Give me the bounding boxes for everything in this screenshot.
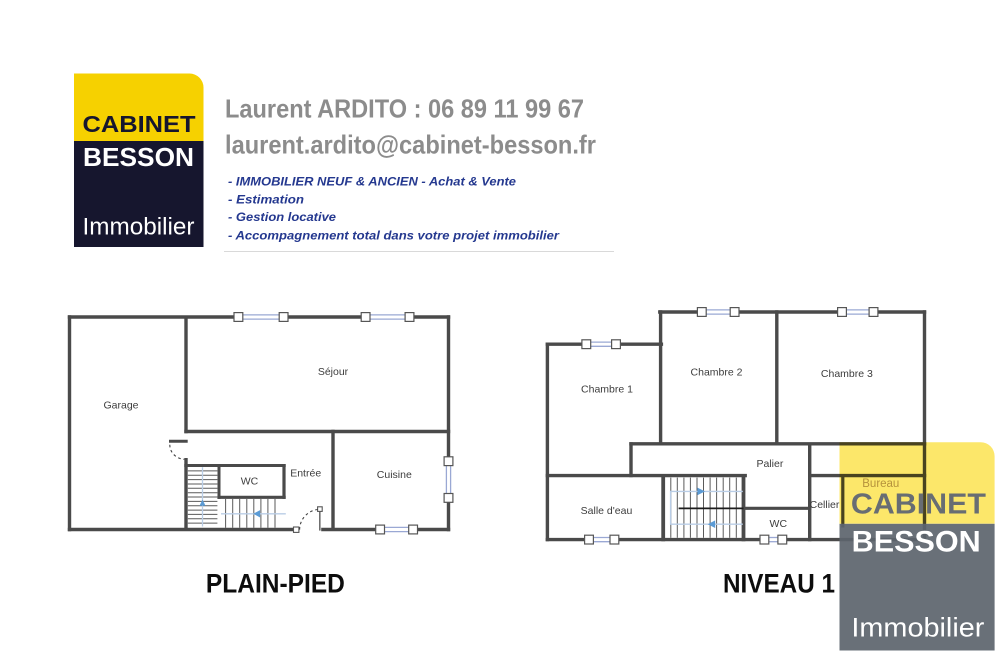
- svg-text:- Gestion locative: - Gestion locative: [228, 212, 337, 224]
- svg-text:Laurent ARDITO : 06 89 11 99 6: Laurent ARDITO : 06 89 11 99 67: [225, 94, 584, 124]
- svg-text:NIVEAU 1: NIVEAU 1: [723, 569, 835, 599]
- svg-text:- Accompagnement total dans vo: - Accompagnement total dans votre projet…: [228, 231, 560, 243]
- svg-text:Garage: Garage: [103, 400, 138, 412]
- svg-text:WC: WC: [241, 476, 259, 488]
- svg-text:- IMMOBILIER NEUF & ANCIEN - A: - IMMOBILIER NEUF & ANCIEN - Achat & Ven…: [228, 177, 517, 189]
- svg-text:Cellier: Cellier: [810, 499, 840, 511]
- svg-text:Palier: Palier: [756, 458, 783, 470]
- svg-text:CABINET: CABINET: [83, 111, 197, 137]
- svg-text:Chambre 3: Chambre 3: [821, 368, 873, 380]
- svg-text:Entrée: Entrée: [290, 468, 321, 480]
- svg-text:Chambre 2: Chambre 2: [691, 367, 743, 379]
- svg-text:Cuisine: Cuisine: [377, 469, 412, 481]
- svg-text:CABINET: CABINET: [851, 489, 986, 521]
- svg-text:Salle d'eau: Salle d'eau: [581, 505, 633, 517]
- svg-text:Séjour: Séjour: [318, 366, 349, 378]
- svg-text:PLAIN-PIED: PLAIN-PIED: [206, 569, 345, 599]
- svg-text:BESSON: BESSON: [83, 144, 194, 172]
- svg-text:BESSON: BESSON: [852, 526, 981, 559]
- svg-text:Immobilier: Immobilier: [851, 613, 984, 643]
- svg-text:Chambre 1: Chambre 1: [581, 383, 633, 395]
- svg-text:Immobilier: Immobilier: [83, 214, 195, 241]
- svg-text:- Estimation: - Estimation: [228, 194, 304, 206]
- svg-text:WC: WC: [770, 518, 788, 530]
- svg-text:laurent.ardito@cabinet-besson.: laurent.ardito@cabinet-besson.fr: [225, 130, 596, 160]
